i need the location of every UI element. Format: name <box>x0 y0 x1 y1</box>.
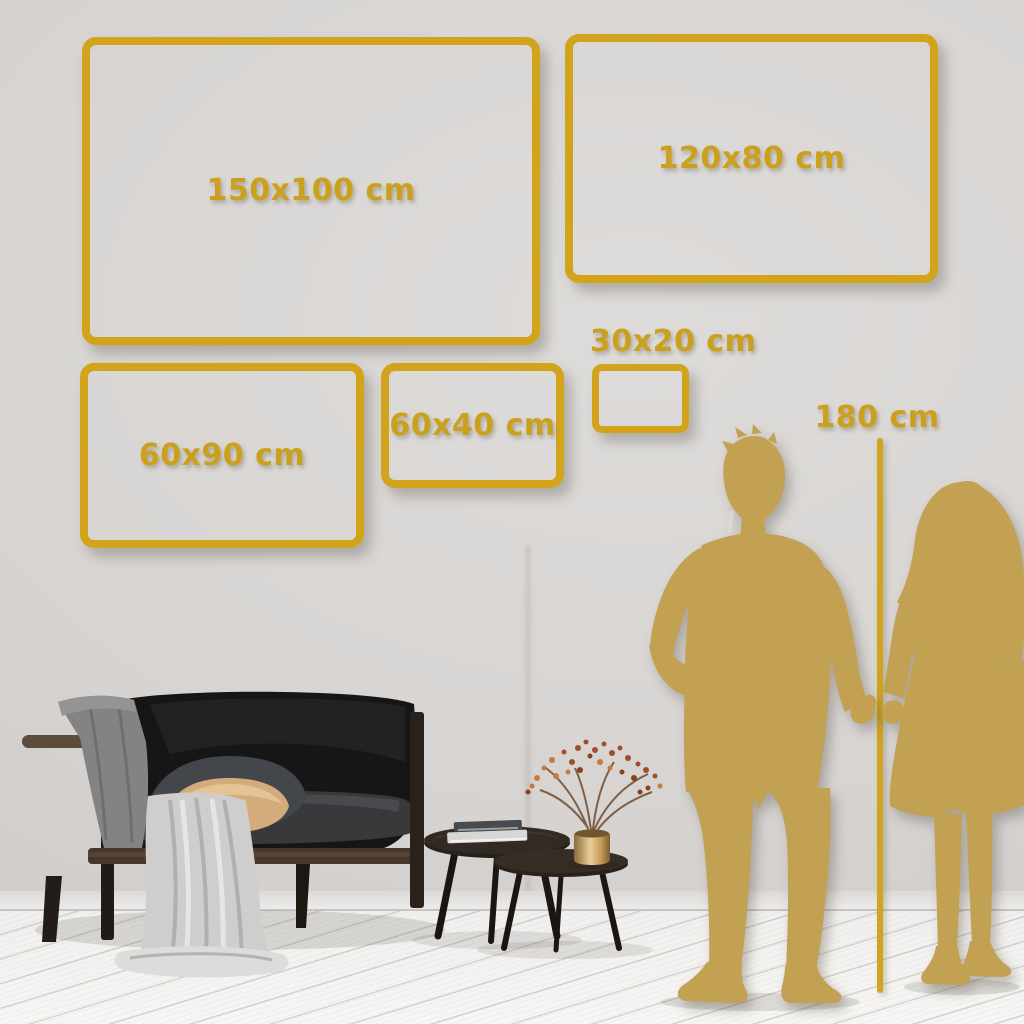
woman-left-leg <box>934 812 962 950</box>
man-head <box>723 436 785 523</box>
woman-bodice <box>911 553 1013 662</box>
couple-silhouette <box>0 0 1024 1024</box>
woman-skirt <box>890 658 1024 817</box>
size-guide-scene: 150x100 cm 120x80 cm 60x90 cm 60x40 cm 3… <box>0 0 1024 1024</box>
man-left-foot <box>678 962 748 1003</box>
woman-head <box>942 481 992 539</box>
man-collar-gap <box>728 511 734 533</box>
woman-silhouette <box>879 481 1024 985</box>
woman-right-leg <box>966 810 992 946</box>
man-left-leg <box>686 788 754 966</box>
man-silhouette <box>649 424 880 1003</box>
man-torso <box>684 533 832 792</box>
man-right-foot <box>781 966 841 1003</box>
man-right-leg <box>764 788 831 970</box>
woman-right-foot <box>962 941 1011 977</box>
